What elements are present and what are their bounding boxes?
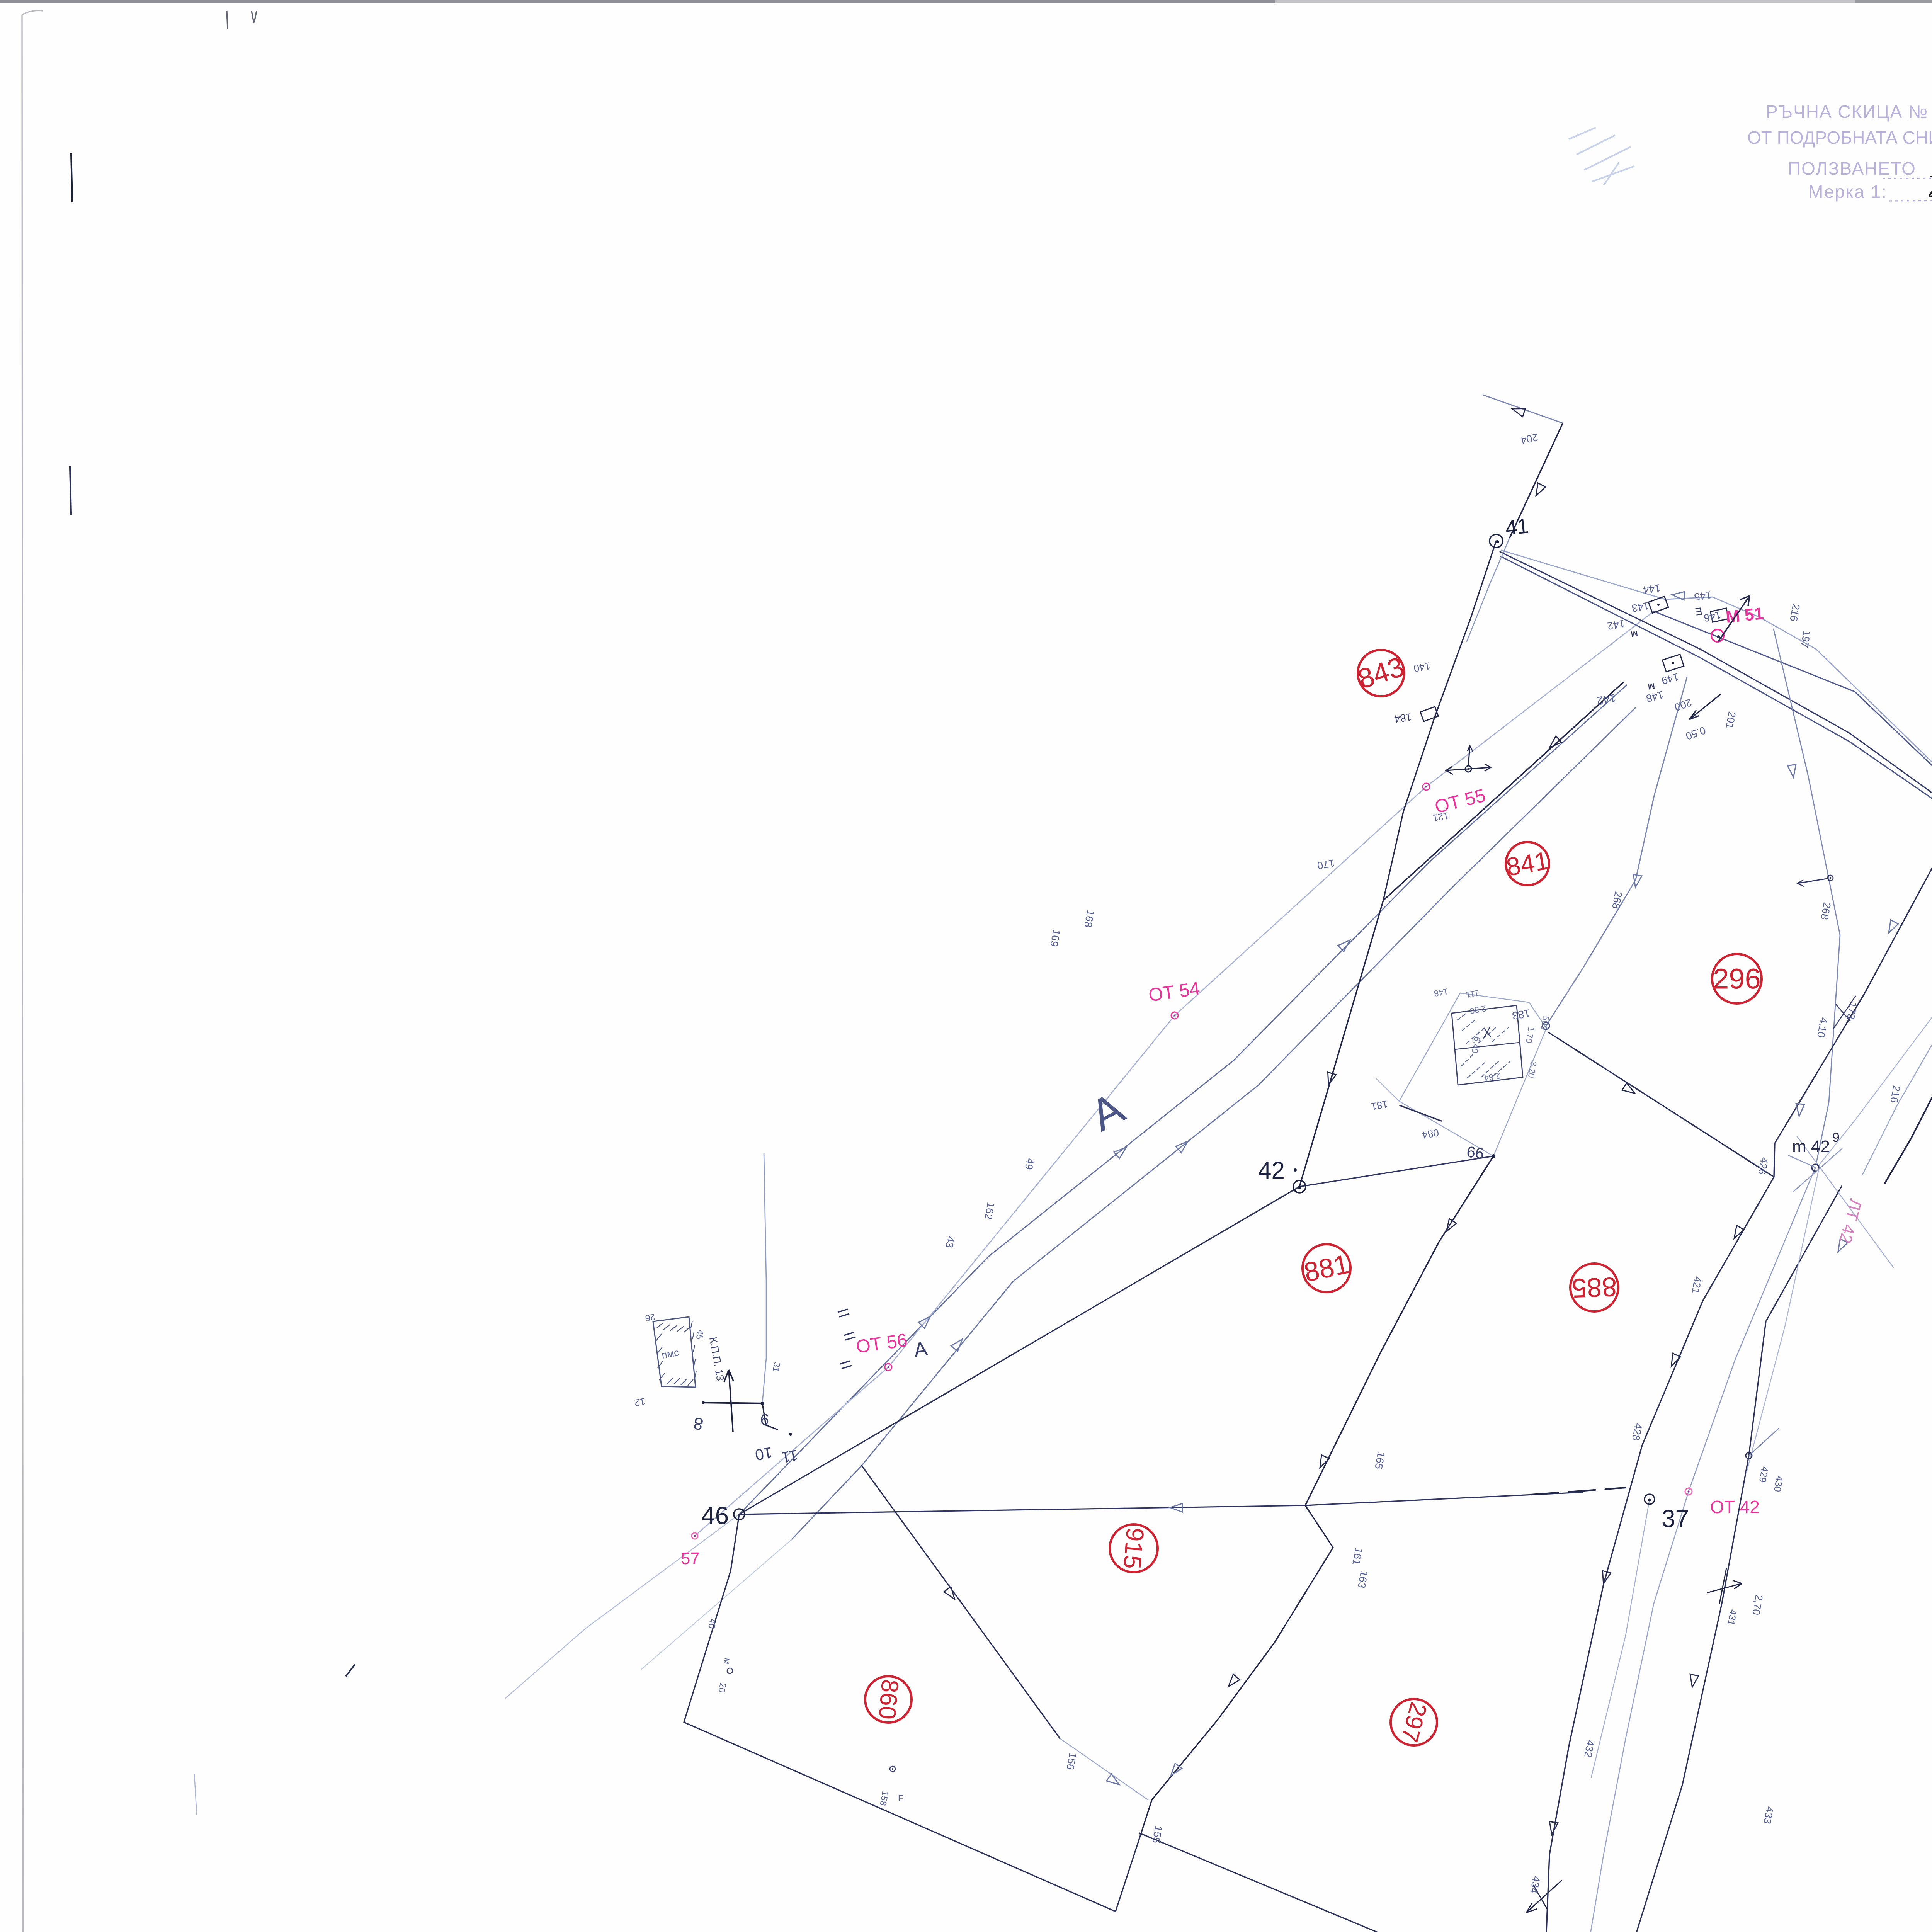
svg-text:40: 40 xyxy=(707,1618,718,1629)
svg-text:296: 296 xyxy=(1713,963,1760,995)
svg-text:10: 10 xyxy=(754,1444,774,1463)
svg-text:Е: Е xyxy=(898,1793,904,1803)
svg-text:42: 42 xyxy=(1258,1157,1285,1184)
svg-text:45: 45 xyxy=(694,1329,706,1340)
svg-text:9: 9 xyxy=(760,1411,769,1428)
svg-text:99: 99 xyxy=(1466,1143,1485,1162)
svg-text:37: 37 xyxy=(1662,1505,1689,1532)
svg-text:12: 12 xyxy=(634,1396,646,1408)
svg-text:20: 20 xyxy=(717,1682,728,1694)
svg-text:ОТ ПОДРОБНАТА СНИМКА НА: ОТ ПОДРОБНАТА СНИМКА НА xyxy=(1747,128,1932,148)
svg-text:860: 860 xyxy=(873,1678,903,1720)
svg-text:Мерка 1:: Мерка 1: xyxy=(1808,182,1887,202)
svg-text:9: 9 xyxy=(1832,1130,1840,1145)
svg-text:ПОЛЗВАНЕТО: ПОЛЗВАНЕТО xyxy=(1788,158,1916,179)
svg-text:m 42: m 42 xyxy=(1792,1137,1830,1156)
svg-text:43: 43 xyxy=(943,1235,957,1249)
svg-text:400: 400 xyxy=(1928,180,1932,205)
svg-text:ОТ 42: ОТ 42 xyxy=(1710,1497,1760,1517)
svg-text:184: 184 xyxy=(1394,711,1413,725)
svg-text:885: 885 xyxy=(1571,1272,1617,1303)
svg-text:144: 144 xyxy=(1643,582,1662,596)
svg-text:145: 145 xyxy=(1694,589,1713,603)
svg-text:46: 46 xyxy=(701,1502,729,1529)
svg-text:РЪЧНА СКИЦА №: РЪЧНА СКИЦА № xyxy=(1766,102,1928,122)
svg-text:31: 31 xyxy=(771,1361,782,1373)
svg-text:915: 915 xyxy=(1118,1527,1149,1570)
svg-text:49: 49 xyxy=(1023,1157,1036,1171)
svg-text:57: 57 xyxy=(681,1549,700,1568)
svg-text:11: 11 xyxy=(781,1446,799,1466)
svg-text:26: 26 xyxy=(645,1312,656,1323)
svg-text:41: 41 xyxy=(1504,514,1530,540)
